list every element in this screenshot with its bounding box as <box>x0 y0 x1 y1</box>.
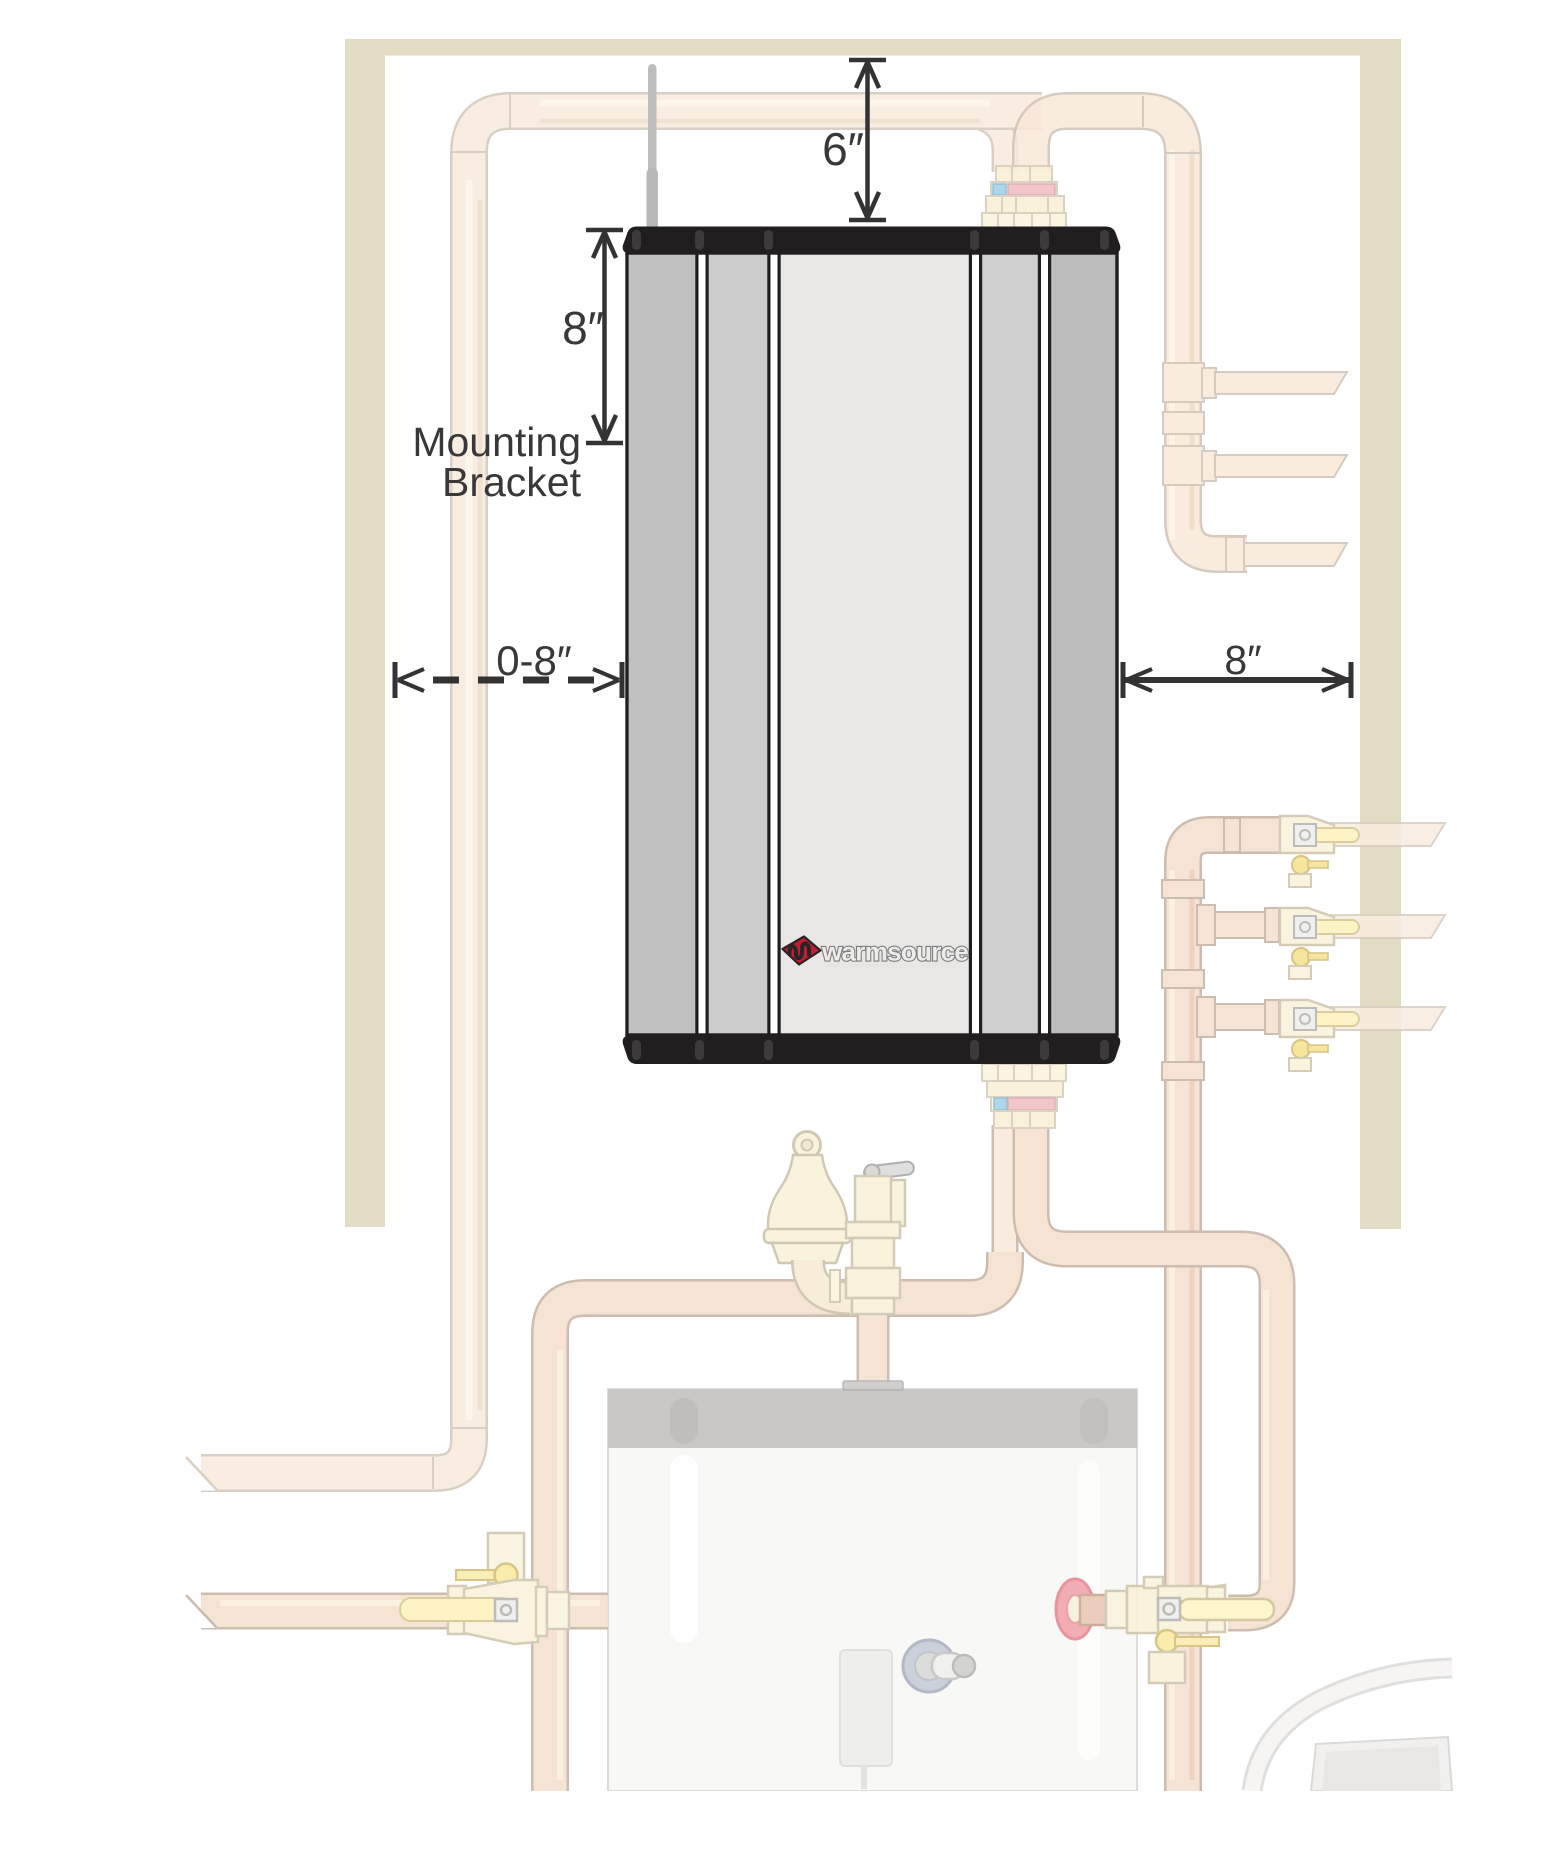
svg-text:8″: 8″ <box>562 302 604 354</box>
svg-text:8″: 8″ <box>1224 637 1261 683</box>
svg-text:6″: 6″ <box>822 123 864 175</box>
svg-text:0-8″: 0-8″ <box>496 637 572 684</box>
svg-text:Bracket: Bracket <box>442 459 582 505</box>
svg-text:warmsource: warmsource <box>821 937 968 967</box>
